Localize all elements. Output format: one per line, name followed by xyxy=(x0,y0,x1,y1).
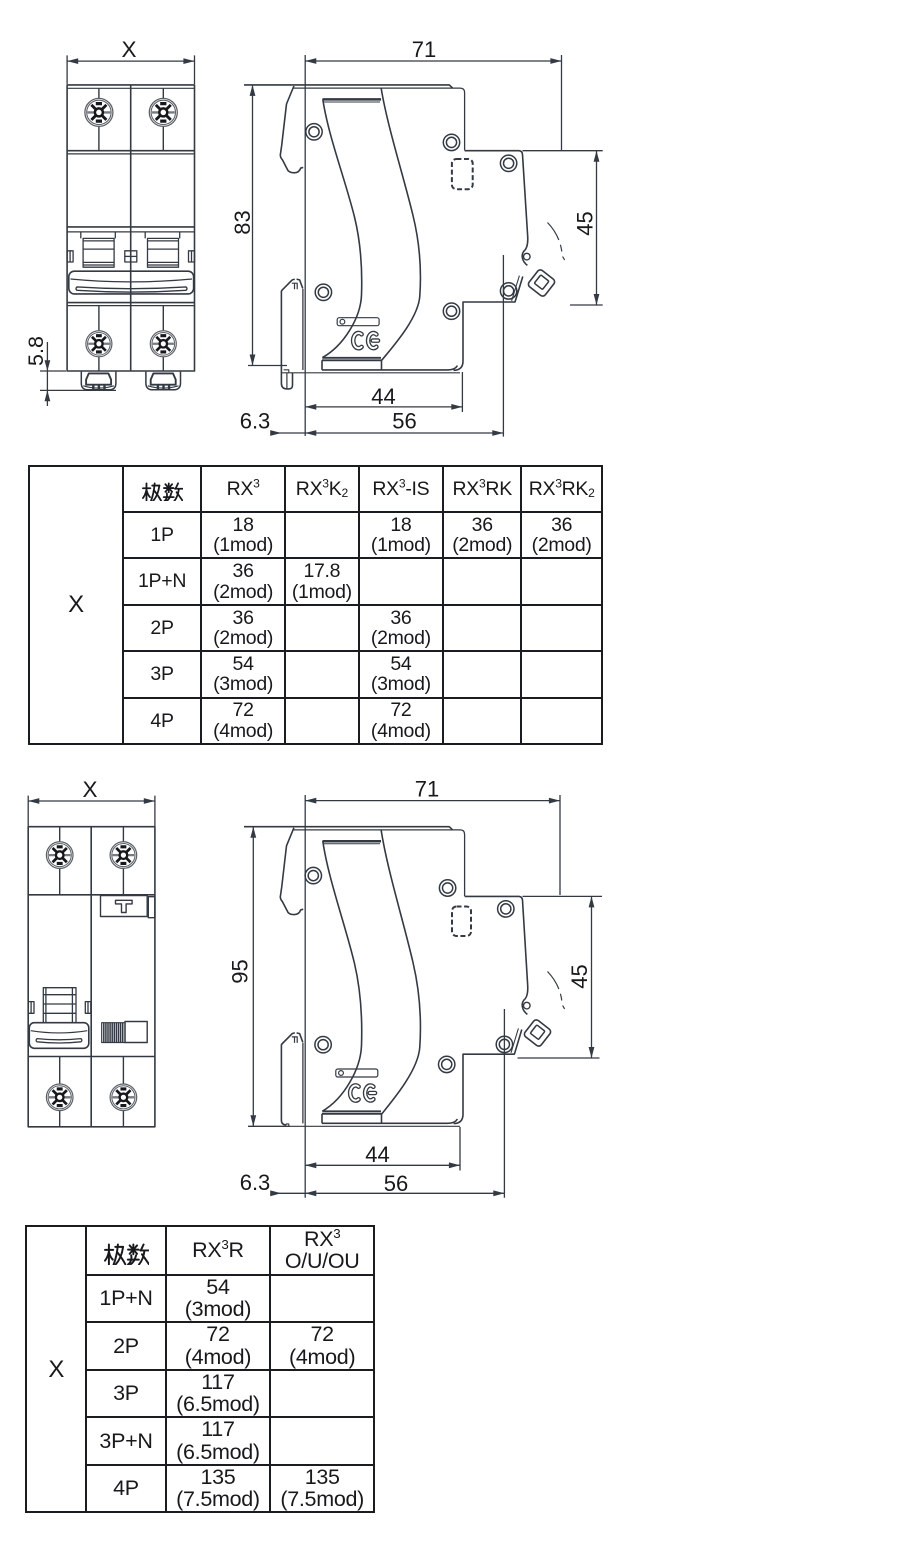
svg-text:56: 56 xyxy=(384,1171,408,1196)
svg-text:6.3: 6.3 xyxy=(240,1170,271,1195)
svg-text:5.8: 5.8 xyxy=(24,336,48,366)
svg-text:X: X xyxy=(82,777,97,802)
svg-text:56: 56 xyxy=(392,409,416,434)
svg-text:X: X xyxy=(121,37,136,62)
svg-text:44: 44 xyxy=(371,384,395,409)
svg-text:95: 95 xyxy=(228,959,253,983)
svg-text:45: 45 xyxy=(567,964,592,988)
svg-text:71: 71 xyxy=(415,777,439,802)
svg-text:44: 44 xyxy=(365,1142,389,1167)
svg-text:45: 45 xyxy=(573,211,598,235)
svg-text:71: 71 xyxy=(412,37,436,62)
svg-text:83: 83 xyxy=(230,210,255,234)
svg-text:6.3: 6.3 xyxy=(240,409,271,434)
